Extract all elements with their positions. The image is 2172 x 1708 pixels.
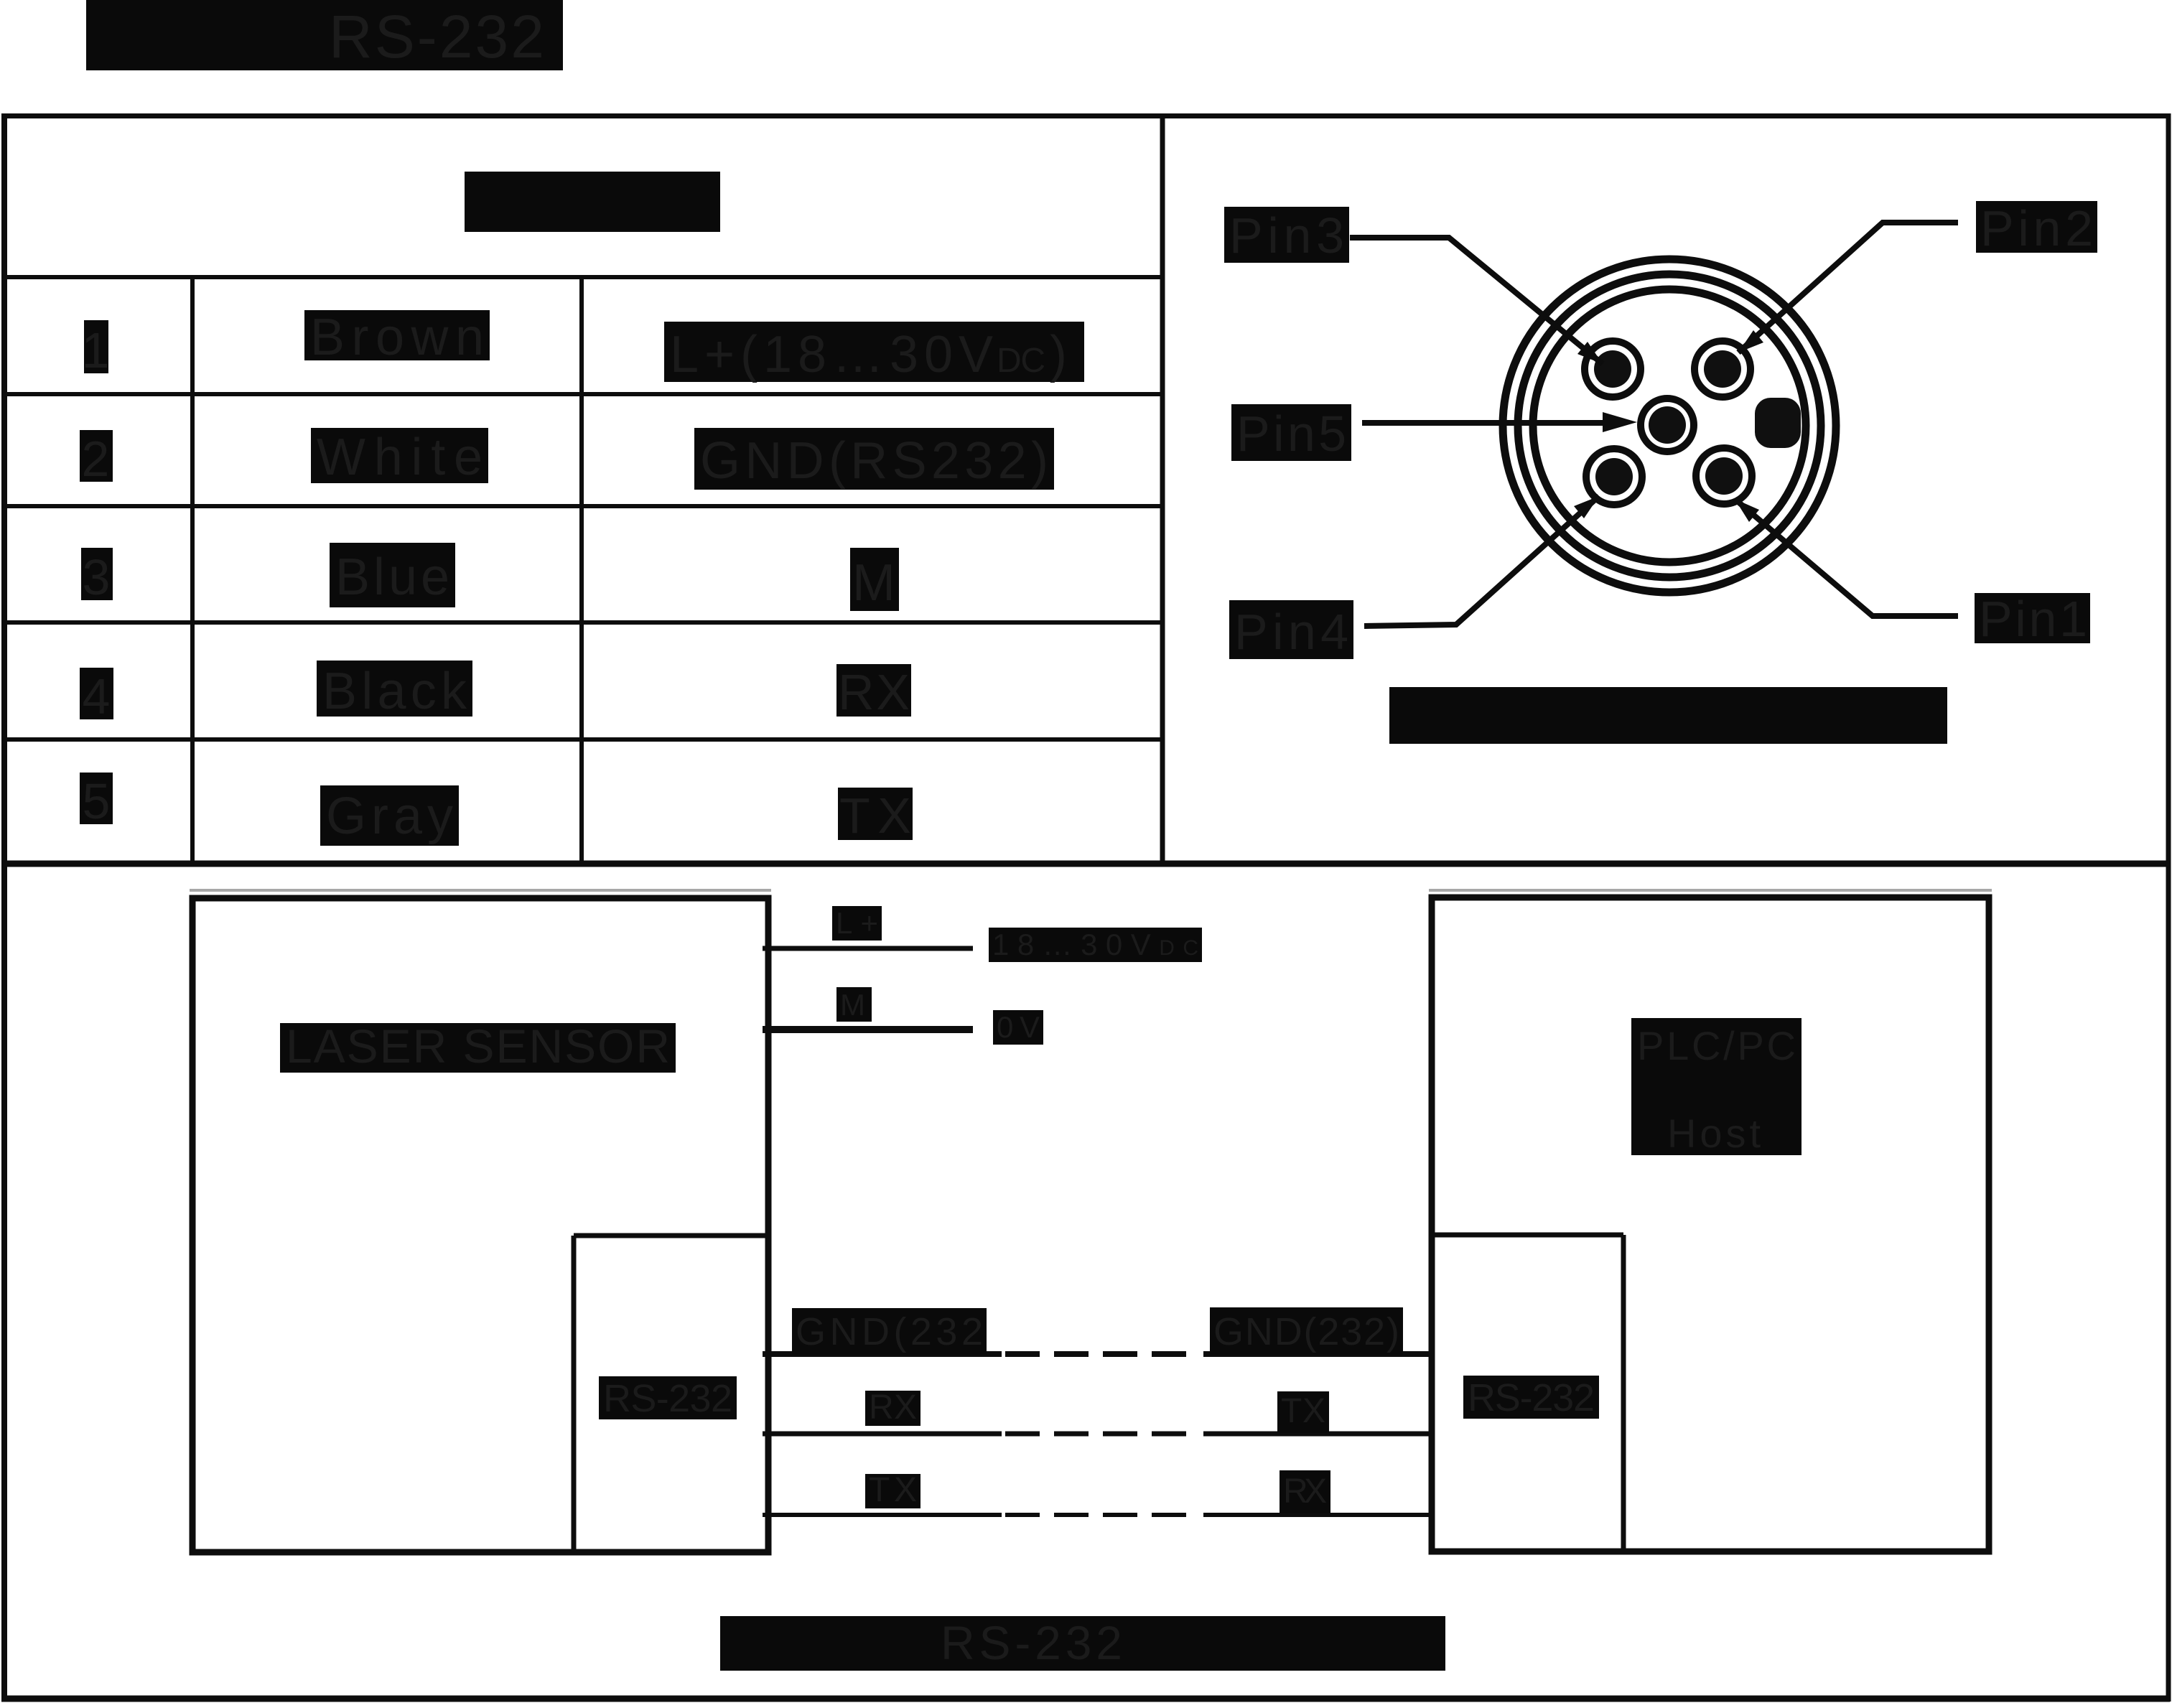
svg-text:Pin4: Pin4 [1234, 604, 1348, 660]
svg-text:DC: DC [997, 342, 1045, 380]
svg-text:RS-232: RS-232 [329, 3, 544, 70]
svg-text:GND(232: GND(232 [796, 1310, 983, 1353]
svg-text:RX: RX [869, 1389, 917, 1427]
svg-text:LASER SENSOR: LASER SENSOR [286, 1019, 670, 1073]
svg-text:RX: RX [1283, 1473, 1327, 1511]
svg-text:Pin2: Pin2 [1980, 200, 2093, 256]
svg-text:RS-232: RS-232 [603, 1377, 732, 1420]
svg-text:3: 3 [83, 549, 111, 605]
svg-text:): ) [1050, 326, 1067, 383]
svg-text:RS-232: RS-232 [1468, 1376, 1595, 1419]
svg-text:M: M [840, 988, 865, 1022]
svg-text:White: White [317, 429, 483, 486]
svg-text:Brown: Brown [310, 309, 484, 366]
svg-text:5: 5 [83, 773, 111, 829]
svg-text:GND(232): GND(232) [1213, 1310, 1399, 1353]
svg-text:2: 2 [82, 431, 110, 487]
svg-text:Pin1: Pin1 [1979, 591, 2087, 647]
svg-text:TX: TX [1281, 1392, 1325, 1430]
svg-text:Black: Black [322, 663, 467, 720]
svg-text:4: 4 [83, 668, 111, 724]
svg-text:1: 1 [82, 322, 110, 378]
svg-text:M: M [852, 554, 895, 612]
svg-text:RX: RX [838, 664, 910, 720]
svg-text:Pin5: Pin5 [1236, 406, 1346, 462]
svg-text:L+(18…30V: L+(18…30V [670, 326, 993, 383]
svg-text:PLC/PC: PLC/PC [1637, 1023, 1796, 1068]
svg-text:Pin3: Pin3 [1229, 207, 1344, 263]
svg-text:Blue: Blue [335, 549, 449, 606]
